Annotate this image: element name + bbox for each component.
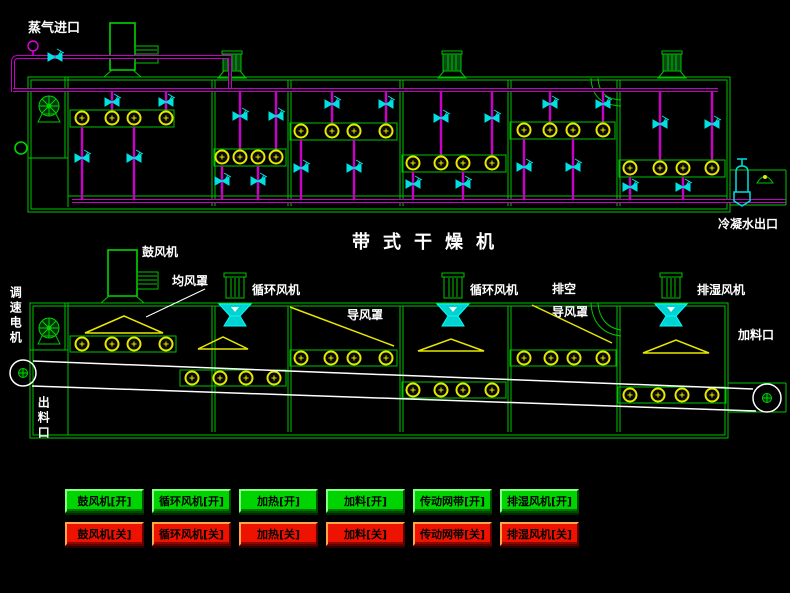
speed-motor-fan-icon <box>39 318 59 338</box>
heating-on-button[interactable]: 加热[开] <box>239 489 318 513</box>
blower-off-button[interactable]: 鼓风机[关] <box>65 522 144 546</box>
circulating-fan-right-icon <box>437 273 469 326</box>
dehumidify-fan-off-button[interactable]: 排湿风机[关] <box>500 522 579 546</box>
condensate-trap <box>730 159 786 206</box>
top-chamber-6 <box>619 92 725 200</box>
dehumidify-fan-label: 排湿风机 <box>697 284 745 297</box>
roller-rows <box>70 336 726 403</box>
circulating-fan-left-label: 循环风机 <box>252 284 300 297</box>
off-button-row: 鼓风机[关] 循环风机[关] 加热[关] 加料[关] 传动网带[关] 排湿风机[… <box>65 522 579 546</box>
guide-hood-left-label: 导风罩 <box>347 309 383 322</box>
steam-inlet-label: 蒸气进口 <box>28 22 80 36</box>
pressure-gauge-icon <box>28 41 38 56</box>
top-stack-icon <box>438 51 466 78</box>
blower-label: 鼓风机 <box>142 246 178 259</box>
dehumidify-fan-on-button[interactable]: 排湿风机[开] <box>500 489 579 513</box>
condensate-outlet-label: 冷凝水出口 <box>718 218 778 231</box>
circulating-fan-on-button[interactable]: 循环风机[开] <box>152 489 231 513</box>
feed-inlet-label: 加料口 <box>738 329 774 342</box>
feeding-on-button[interactable]: 加料[开] <box>326 489 405 513</box>
on-button-row: 鼓风机[开] 循环风机[开] 加热[开] 加料[开] 传动网带[开] 排湿风机[… <box>65 489 579 513</box>
feed-pulley-icon <box>763 394 772 403</box>
circulating-fan-right-label: 循环风机 <box>470 284 518 297</box>
top-chamber-5 <box>510 92 615 200</box>
top-diagram <box>13 23 786 212</box>
top-small-fan-icon <box>15 142 27 154</box>
air-hoods <box>85 316 709 353</box>
discharge-pulley-icon <box>19 369 28 378</box>
feeding-off-button[interactable]: 加料[关] <box>326 522 405 546</box>
middle-frame <box>30 303 728 438</box>
top-chamber-1 <box>70 92 175 200</box>
air-hood-label: 均风罩 <box>172 275 208 288</box>
middle-diagram <box>10 250 786 438</box>
mesh-belt-on-button[interactable]: 传动网带[开] <box>413 489 492 513</box>
circulating-fan-off-button[interactable]: 循环风机[关] <box>152 522 231 546</box>
circulating-fan-left-icon <box>219 273 251 326</box>
blower-on-button[interactable]: 鼓风机[开] <box>65 489 144 513</box>
discharge-outlet-label: 出料口 <box>36 396 49 441</box>
top-blower-fan-icon <box>39 96 59 116</box>
page-title: 带式干燥机 <box>352 228 507 254</box>
dehumidify-fan-icon <box>655 273 687 326</box>
steam-inlet-pipe <box>13 57 718 92</box>
top-chamber-2 <box>214 92 286 200</box>
conveyor-belt <box>10 360 781 412</box>
mesh-belt-off-button[interactable]: 传动网带[关] <box>413 522 492 546</box>
top-chamber-4 <box>402 92 506 200</box>
vent-label: 排空 <box>552 283 576 296</box>
heating-off-button[interactable]: 加热[关] <box>239 522 318 546</box>
speed-motor-label: 调速电机 <box>8 286 21 346</box>
top-chamber-3 <box>290 92 397 200</box>
top-stack-icon <box>658 51 686 78</box>
top-chimney <box>104 23 158 77</box>
guide-hood-right-label: 导风罩 <box>552 306 588 319</box>
hmi-screen: 蒸气进口 冷凝水出口 带式干燥机 调速电机 鼓风机 均风罩 循环风机 导风罩 循… <box>0 0 790 593</box>
